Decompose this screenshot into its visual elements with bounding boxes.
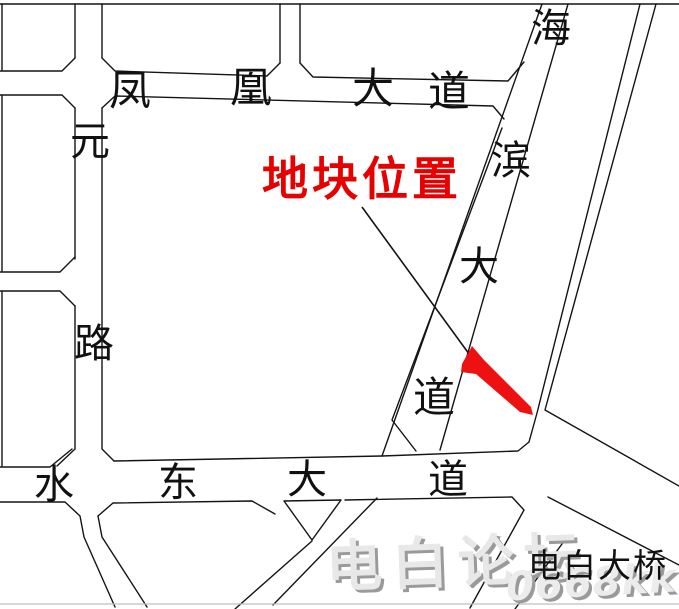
plot-location-annotation: 地块位置 <box>262 157 462 203</box>
road-label-fenghuang-char: 凤 <box>109 71 151 113</box>
road-edge-line <box>98 516 147 607</box>
road-label-yuanlu-char: 路 <box>74 324 114 364</box>
road-label-shuidong-char: 道 <box>428 460 468 500</box>
road-label-haibin-char: 大 <box>459 247 499 287</box>
traffic-island-outline <box>284 500 341 540</box>
road-label-fenghuang-char: 凰 <box>230 68 272 110</box>
road-edge-line <box>300 62 524 81</box>
road-label-fenghuang-char: 道 <box>428 72 470 114</box>
road-edge-line <box>545 4 679 486</box>
road-edge-line <box>57 306 75 466</box>
road-label-haibin-char: 海 <box>531 9 571 49</box>
road-edge-line <box>0 95 75 108</box>
road-edge-line <box>0 58 75 71</box>
leader-line <box>362 207 472 358</box>
road-label-shuidong-char: 大 <box>287 460 327 500</box>
road-edge-line <box>529 4 640 442</box>
road-label-haibin-char: 道 <box>413 378 455 420</box>
road-edge-line <box>0 257 75 272</box>
road-label-fenghuang-char: 大 <box>352 69 394 111</box>
bridge-label: 电白大桥 <box>528 551 668 584</box>
road-network-drawing <box>0 0 679 609</box>
road-edge-line <box>235 541 312 609</box>
road-label-shuidong-char: 水 <box>34 465 74 505</box>
road-label-shuidong-char: 东 <box>158 463 198 503</box>
road-label-haibin-char: 滨 <box>491 141 531 181</box>
location-map: 电白论坛 0668kk.com 凤 凰 大 道 元 路 海 滨 大 道 水 东 … <box>0 0 679 609</box>
road-label-yuanlu-char: 元 <box>70 122 110 162</box>
road-edge-line <box>0 291 75 306</box>
parcel-highlight <box>461 346 533 415</box>
